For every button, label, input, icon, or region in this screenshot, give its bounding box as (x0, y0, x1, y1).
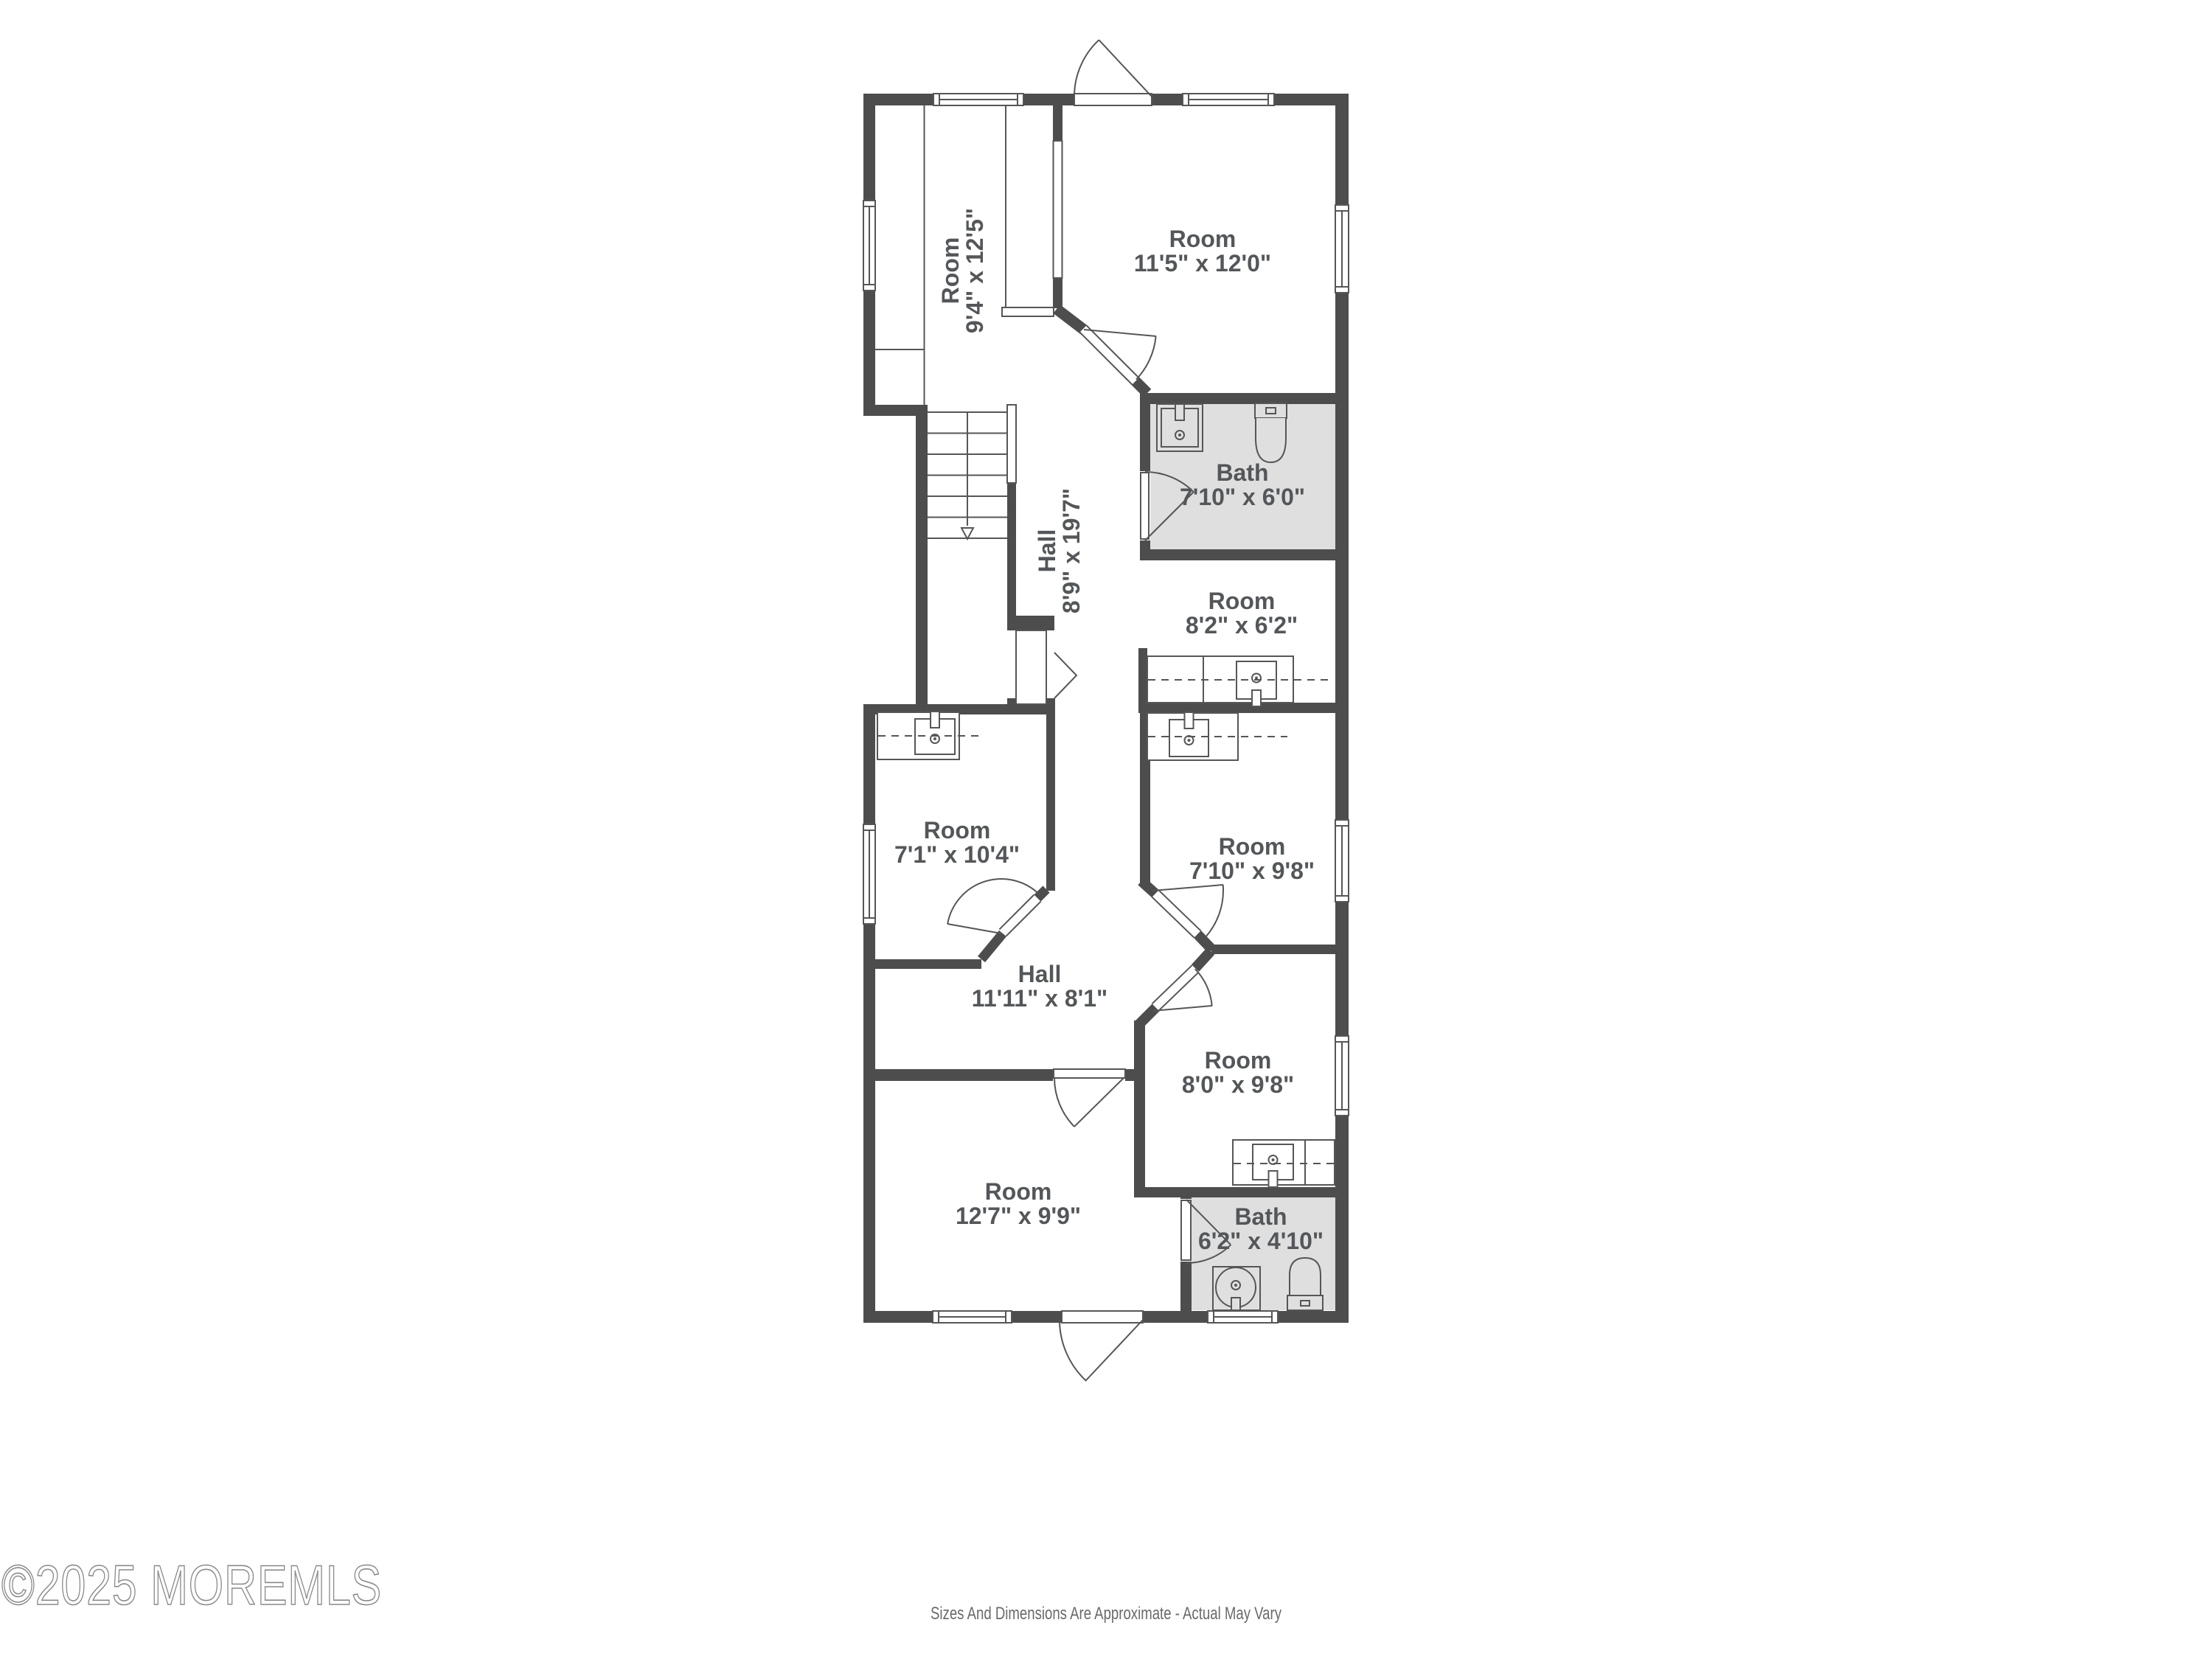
svg-text:8'9" x 19'7": 8'9" x 19'7" (1058, 488, 1085, 613)
svg-text:9'4" x 12'5": 9'4" x 12'5" (961, 208, 988, 333)
svg-text:©2025 MOREMLS: ©2025 MOREMLS (1, 1554, 382, 1617)
svg-text:7'10" x 6'0": 7'10" x 6'0" (1180, 484, 1305, 510)
svg-text:7'10" x 9'8": 7'10" x 9'8" (1189, 858, 1315, 884)
svg-text:Room: Room (1205, 1047, 1272, 1074)
svg-text:Room: Room (924, 817, 991, 844)
svg-text:Sizes And Dimensions Are Appro: Sizes And Dimensions Are Approximate - A… (931, 1604, 1281, 1624)
svg-text:Room: Room (1169, 226, 1237, 252)
svg-text:12'7" x 9'9": 12'7" x 9'9" (956, 1203, 1081, 1229)
svg-text:8'0" x 9'8": 8'0" x 9'8" (1182, 1071, 1294, 1098)
svg-text:7'1" x 10'4": 7'1" x 10'4" (894, 841, 1020, 868)
svg-text:Room: Room (985, 1178, 1052, 1205)
svg-text:Room: Room (937, 237, 964, 305)
svg-text:8'2" x 6'2": 8'2" x 6'2" (1186, 612, 1298, 639)
svg-text:Bath: Bath (1216, 459, 1268, 486)
svg-text:11'11" x 8'1": 11'11" x 8'1" (972, 985, 1107, 1012)
svg-text:Bath: Bath (1234, 1203, 1287, 1230)
svg-text:Room: Room (1208, 588, 1276, 614)
svg-text:11'5" x 12'0": 11'5" x 12'0" (1134, 250, 1271, 276)
svg-text:Hall: Hall (1034, 529, 1060, 573)
svg-text:6'2" x 4'10": 6'2" x 4'10" (1198, 1228, 1324, 1254)
svg-text:Hall: Hall (1018, 961, 1062, 987)
svg-text:Room: Room (1219, 833, 1286, 860)
